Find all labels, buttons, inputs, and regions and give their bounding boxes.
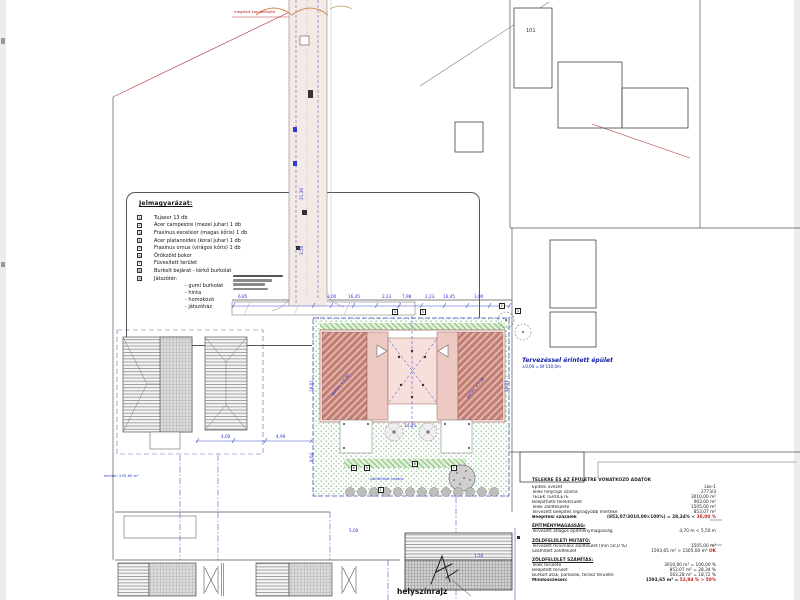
plan-marker: 8: [351, 465, 357, 471]
table-row: Beépítési százalék(853,07/3010,00×100%) …: [532, 515, 716, 520]
building-annotation-title: Tervezéssel érintett épület: [522, 357, 613, 364]
dimension-label: 18,01: [309, 380, 314, 392]
dimension-label: 16,45: [348, 294, 360, 299]
dimension-label: 3,00: [474, 294, 483, 299]
drawing-caption: helyszínrajz: [397, 587, 447, 596]
table-section: Építési övezetLke-1Telek helyrajzi száma…: [532, 485, 716, 520]
boundary-diagonals: [113, 2, 690, 158]
dimension-label: 2,23: [425, 294, 434, 299]
scan-marks: [1, 38, 5, 267]
dimension-label: 18,01: [504, 380, 509, 392]
dimension-label: 1,50: [474, 553, 483, 558]
site-data-table-title: TELEKRE ÉS AZ ÉPÜLETRE VONATKOZÓ ADATOK: [532, 478, 716, 483]
table-row-label: Mindösszesen:: [532, 578, 568, 583]
plan-marker: 4: [392, 309, 398, 315]
table-row-value-red: OK: [708, 549, 716, 554]
dimension-label: 2,23: [382, 294, 391, 299]
left-neighbor-houses: [117, 330, 263, 538]
dimension-label: 6,85: [238, 294, 247, 299]
table-row: Számított zöldfelület1593,65 m² > 1505,0…: [532, 549, 716, 554]
table-section: ÉPÍTMÉNYMAGASSÁG:Tervezett átlagos építm…: [532, 524, 716, 534]
table-row-value: 4,70 m < 5,50 m: [679, 529, 716, 534]
parcel-number-label: 101: [526, 28, 536, 34]
plan-marker: 2: [499, 303, 505, 309]
table-row-value: 1593,65 m² > 1505,00 m² OK: [651, 549, 716, 554]
plan-marker: 3: [515, 308, 521, 314]
dimension-label: 14,05: [404, 423, 416, 428]
dimension-label: 4,99: [276, 434, 285, 439]
gate-mark: [342, 566, 356, 594]
dimension-label: 3,50: [299, 246, 304, 255]
site-data-table: TELEKRE ÉS AZ ÉPÜLETRE VONATKOZÓ ADATOK …: [532, 478, 716, 583]
plan-marker: 7: [451, 465, 457, 471]
bottom-buildings: [118, 563, 356, 596]
table-row-label: Számított zöldfelület: [532, 549, 576, 554]
table-row-label: Tervezett átlagos építménymagasság: [532, 529, 613, 534]
gate-mark: [204, 566, 218, 594]
table-row: Mindösszesen:1593,65 m² = 52,94 % > 50%: [532, 578, 716, 583]
plan-marker: 9: [364, 465, 370, 471]
site-plan-canvas: Jelmagyarázat: 1Tujasor 13 db2Acer campe…: [0, 0, 800, 600]
table-row-value: (853,07/3010,00×100%) = 28,34% < 30,00 %: [607, 515, 716, 520]
plan-marker: 6: [412, 461, 418, 467]
road-strip: [232, 0, 352, 311]
dimension-label: 4,00: [221, 434, 230, 439]
area-annotation: terület: 535,60 m²: [104, 473, 139, 478]
lawn-band-bottom: [344, 459, 466, 468]
dimension-label: 5,00: [349, 528, 358, 533]
building-annotation-level: ±0,00 = Bf 110,0m: [522, 364, 613, 369]
table-row-value: 1593,65 m² = 52,94 % > 50%: [646, 578, 716, 583]
dimension-label: 3,00: [327, 294, 336, 299]
table-row-label: Beépítési százalék: [532, 515, 577, 520]
dimension-label: 21,36: [299, 188, 304, 200]
table-section: ZÖLDFELÜLET SZÁMÍTÁS:Telek területe3010,…: [532, 558, 716, 583]
building-annotation: Tervezéssel érintett épület ±0,00 = Bf 1…: [522, 357, 613, 369]
table-row-value-red: 52,94 % > 50%: [678, 578, 716, 583]
dimension-label: 16,45: [443, 294, 455, 299]
table-section: ZÖLDFELÜLETI MUTATÓ:Tervezett minimális …: [532, 539, 716, 554]
red-annotation: meglévő kapubehajtó: [234, 9, 275, 14]
plan-marker: 1: [378, 487, 384, 493]
building-center-court: [388, 338, 437, 404]
green-boundary-label: zöldfelület határa: [370, 476, 403, 481]
dimension-label: 7,98: [402, 294, 411, 299]
site-data-table-sections: Építési övezetLke-1Telek helyrajzi száma…: [532, 485, 716, 583]
table-row: Tervezett átlagos építménymagasság4,70 m…: [532, 529, 716, 534]
terrace-right: [441, 420, 472, 453]
dimension-label: 8,64: [309, 453, 314, 462]
plan-marker: 5: [420, 309, 426, 315]
neighbor-buildings-top-right: [455, 8, 688, 152]
table-row-value-red: 30,00 %: [695, 515, 716, 520]
